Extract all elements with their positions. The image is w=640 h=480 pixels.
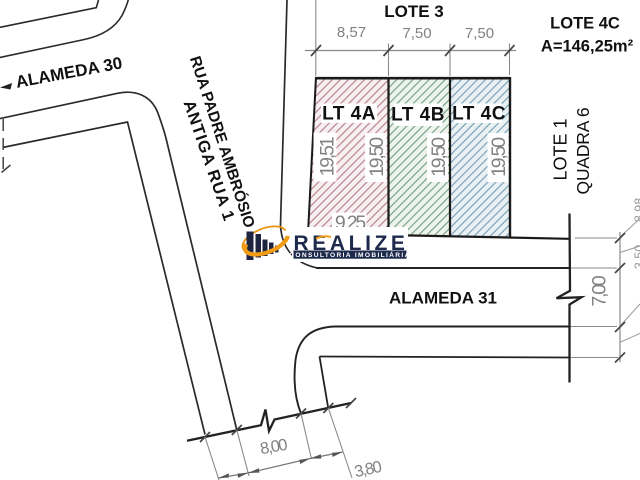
- svg-text:LT 4C: LT 4C: [452, 104, 506, 125]
- svg-text:3,80: 3,80: [353, 458, 384, 480]
- svg-text:ALAMEDA 31: ALAMEDA 31: [389, 289, 497, 308]
- svg-text:QUADRA 6: QUADRA 6: [573, 108, 593, 195]
- svg-text:8,57: 8,57: [337, 24, 366, 41]
- svg-text:ALAMEDA 30: ALAMEDA 30: [14, 53, 124, 91]
- svg-text:7,50: 7,50: [402, 25, 431, 42]
- svg-text:CONSULTORIA IMOBILIÁRIA: CONSULTORIA IMOBILIÁRIA: [289, 250, 410, 259]
- svg-text:LOTE 1: LOTE 1: [551, 118, 571, 180]
- svg-text:19,51: 19,51: [317, 137, 339, 176]
- svg-text:A=146,25m²: A=146,25m²: [541, 38, 634, 56]
- svg-text:LT 4B: LT 4B: [391, 105, 445, 126]
- svg-text:8,00: 8,00: [259, 436, 289, 458]
- svg-text:LOTE 3: LOTE 3: [384, 2, 444, 21]
- svg-text:8,98: 8,98: [633, 198, 640, 222]
- svg-text:LOTE 4C: LOTE 4C: [550, 15, 620, 33]
- svg-text:3,50: 3,50: [633, 245, 640, 269]
- svg-text:19,50: 19,50: [488, 137, 510, 177]
- svg-text:19,50: 19,50: [428, 137, 450, 177]
- svg-text:19,50: 19,50: [366, 137, 388, 177]
- svg-text:LT 4A: LT 4A: [322, 104, 376, 125]
- svg-text:7,00: 7,00: [589, 275, 611, 307]
- svg-text:7,50: 7,50: [465, 25, 494, 42]
